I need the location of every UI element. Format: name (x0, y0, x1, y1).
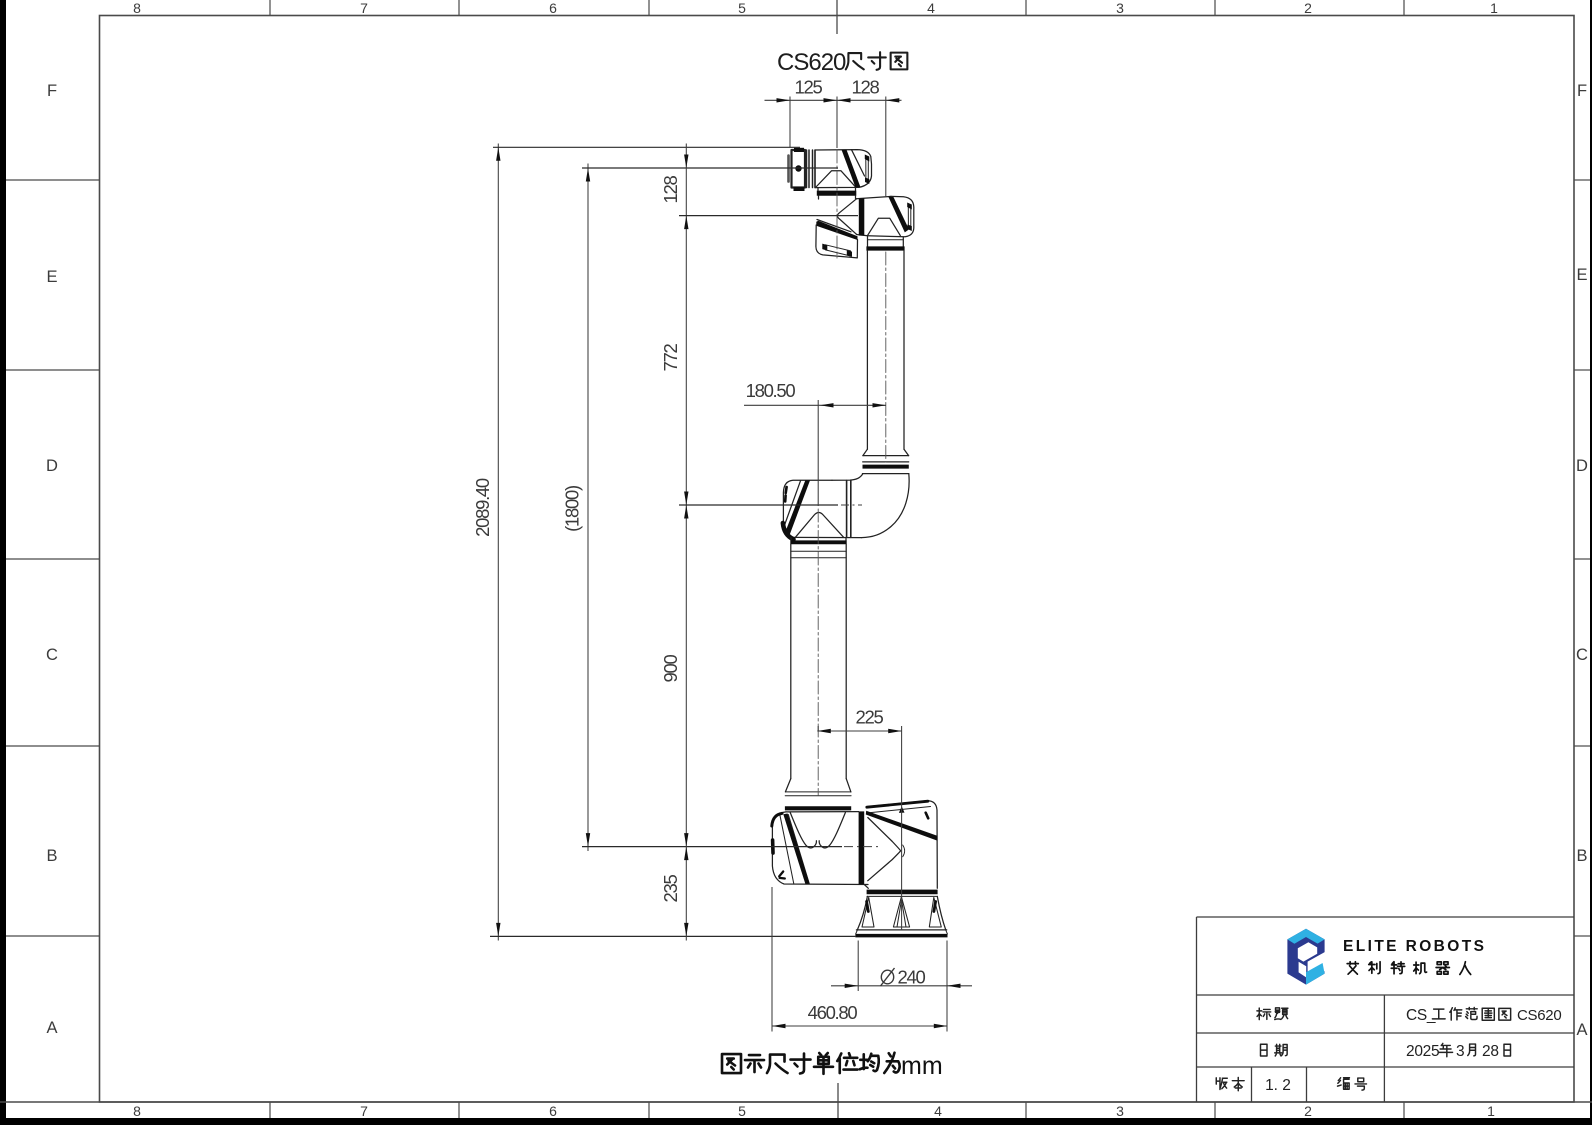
svg-text:2089.40: 2089.40 (472, 478, 493, 537)
svg-text:D: D (46, 457, 58, 475)
svg-text:2: 2 (1304, 1103, 1312, 1119)
svg-text:CS_: CS_ (1406, 1007, 1436, 1024)
svg-text:mm: mm (901, 1052, 943, 1080)
svg-text:3: 3 (1456, 1043, 1465, 1060)
svg-text:2025: 2025 (1406, 1043, 1439, 1060)
svg-text:5: 5 (738, 1103, 746, 1119)
svg-text:8: 8 (133, 1103, 141, 1119)
svg-text:6: 6 (549, 1103, 557, 1119)
svg-text:A: A (46, 1019, 57, 1037)
svg-text:28: 28 (1482, 1043, 1499, 1060)
svg-text:3: 3 (1116, 0, 1124, 16)
svg-text:E: E (46, 268, 57, 286)
svg-text:3: 3 (1116, 1103, 1124, 1119)
svg-text:125: 125 (795, 77, 823, 98)
svg-text:B: B (1576, 847, 1587, 865)
svg-text:772: 772 (660, 344, 681, 372)
svg-text:900: 900 (660, 655, 681, 683)
svg-text:(1800): (1800) (562, 485, 583, 532)
svg-text:4: 4 (927, 0, 935, 16)
svg-text:F: F (1577, 82, 1587, 100)
svg-text:5: 5 (738, 0, 746, 16)
svg-text:D: D (1576, 457, 1588, 475)
svg-text:B: B (46, 847, 57, 865)
svg-text:CS620: CS620 (1517, 1007, 1561, 1024)
svg-text:7: 7 (360, 0, 368, 16)
svg-text:1. 2: 1. 2 (1265, 1077, 1291, 1094)
svg-text:6: 6 (549, 0, 557, 16)
svg-text:7: 7 (360, 1103, 368, 1119)
svg-text:460.80: 460.80 (808, 1002, 858, 1023)
svg-text:C: C (1576, 646, 1588, 664)
svg-text:C: C (46, 646, 58, 664)
svg-text:8: 8 (133, 0, 141, 16)
svg-text:128: 128 (660, 176, 681, 204)
svg-text:240: 240 (898, 967, 926, 988)
svg-text:2: 2 (1304, 0, 1312, 16)
svg-text:A: A (1576, 1021, 1587, 1039)
svg-text:1: 1 (1487, 1103, 1495, 1119)
svg-text:235: 235 (660, 875, 681, 903)
svg-text:128: 128 (852, 77, 880, 98)
svg-text:225: 225 (856, 707, 884, 728)
svg-text:F: F (47, 82, 57, 100)
svg-text:180.50: 180.50 (746, 380, 796, 401)
svg-text:E: E (1576, 266, 1587, 284)
svg-text:4: 4 (934, 1103, 942, 1119)
svg-text:1: 1 (1490, 0, 1498, 16)
svg-text:CS620: CS620 (777, 49, 846, 76)
svg-text:ELITE ROBOTS: ELITE ROBOTS (1343, 938, 1486, 955)
